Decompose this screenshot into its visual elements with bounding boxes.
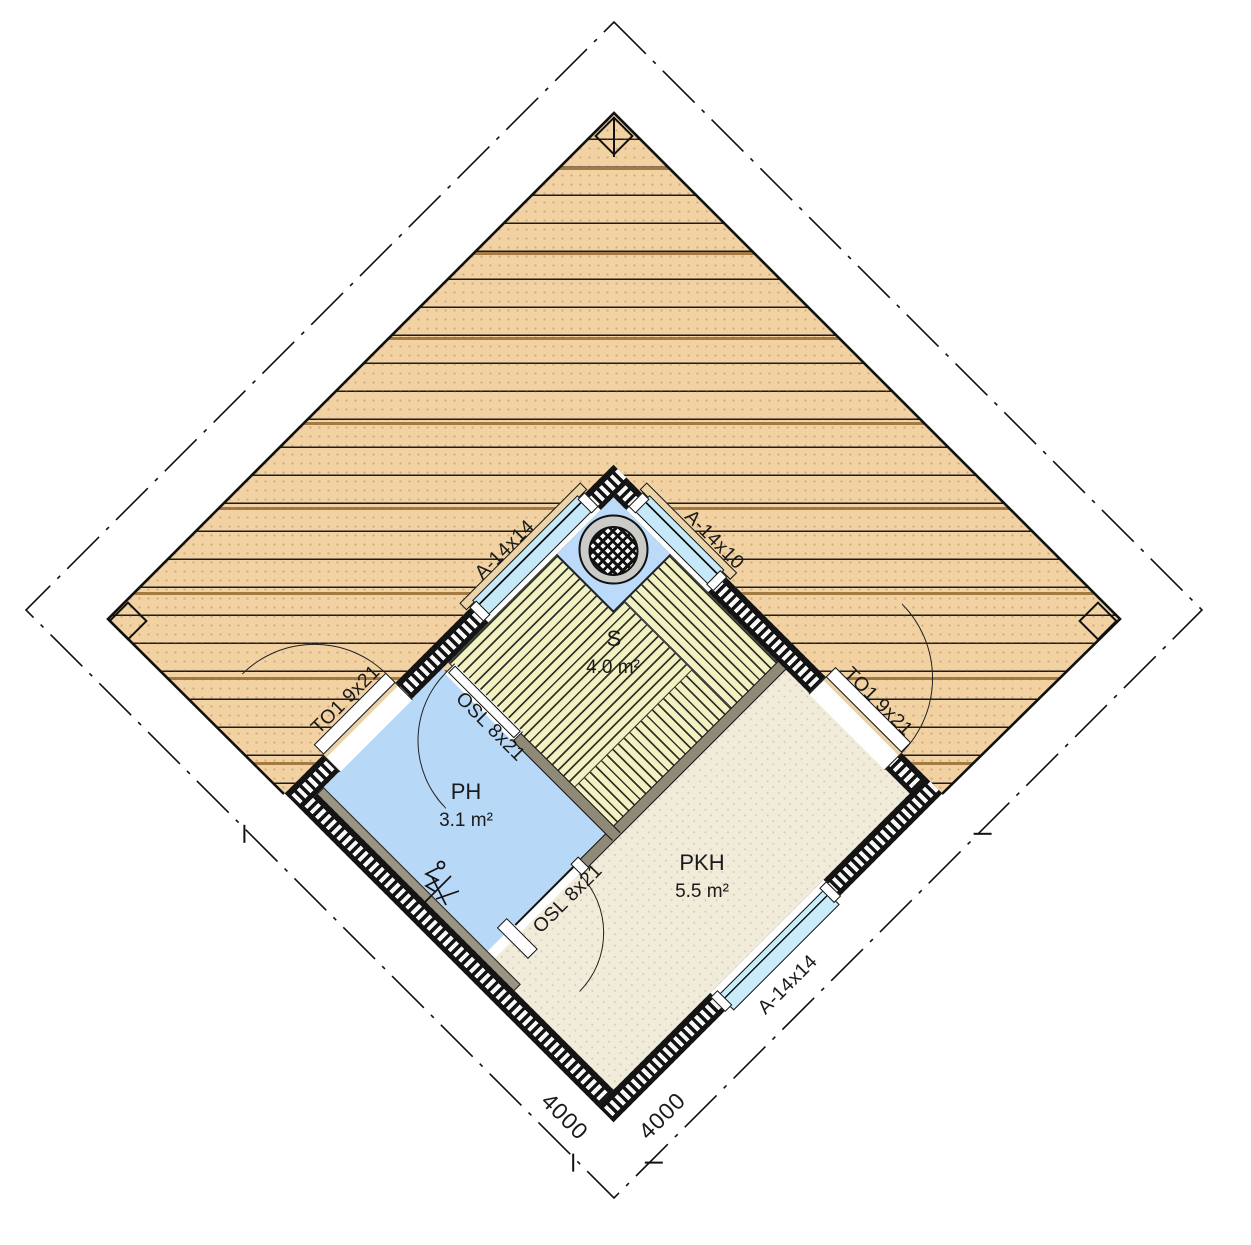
floor-plan-canvas: 4000 4000 S 4.0 m² PH 3.1 m² PKH 5.5 m² … [0,0,1251,1245]
room-pkh-name: PKH [679,850,724,876]
shower-icon [415,853,475,915]
deck-post-top-centerline [613,117,615,157]
room-ph-area: 3.1 m² [439,810,493,832]
dimension-tick [243,825,245,843]
dimension-tick [572,1154,574,1172]
room-pkh-area: 5.5 m² [675,881,729,903]
room-s-area: 4.0 m² [586,657,640,679]
dimension-tick [974,833,992,835]
room-ph-name: PH [451,779,482,805]
dimension-tick [645,1162,663,1164]
room-s-name: S [607,626,622,652]
